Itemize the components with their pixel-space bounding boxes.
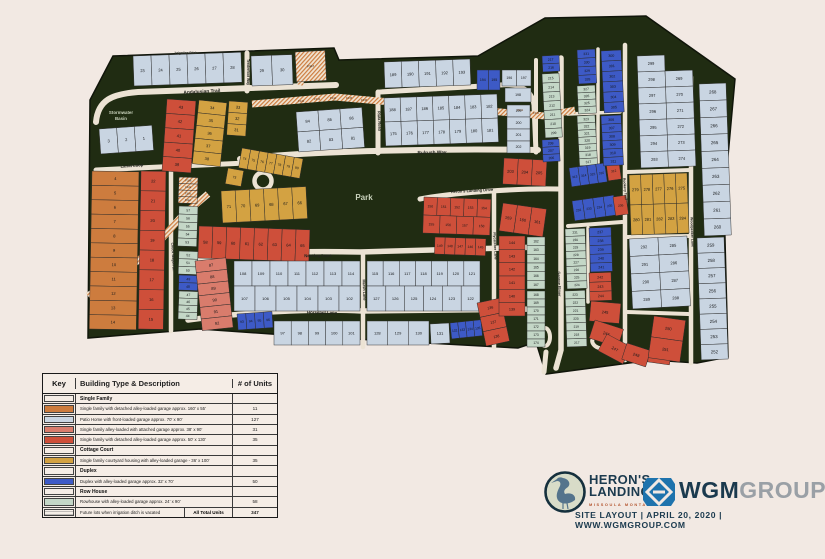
lot-number: 327 xyxy=(583,87,589,91)
lot-number: 170 xyxy=(533,309,539,313)
lot-number: 94 xyxy=(249,319,253,323)
legend-key-swatch xyxy=(43,435,76,444)
lot-block: 149148147146145 xyxy=(434,237,486,256)
lot-block: 115116117118119120121127126125124123122 xyxy=(367,261,480,311)
legend-row: Row House xyxy=(43,486,277,496)
legend-key-swatch xyxy=(43,456,76,465)
lot-number: 239 xyxy=(598,248,604,252)
lot-number: 209 xyxy=(551,131,557,135)
lot-number: 217 xyxy=(548,58,554,62)
lot-number: 182 xyxy=(486,104,494,109)
lot-number: 187 xyxy=(405,106,413,111)
lot-number: 134 xyxy=(467,327,473,332)
lot-number: 129 xyxy=(395,330,402,335)
lot-block: 321 xyxy=(99,125,154,154)
lot-block: 237238239240241 xyxy=(589,227,613,272)
lot-block: 300301302303304305 xyxy=(601,50,624,113)
lot-block: 4342414039 xyxy=(162,99,196,173)
street-label: Riata Road xyxy=(377,111,382,132)
lot-block: F336F335F334F333 xyxy=(178,177,198,204)
legend-row: Patio Home with front-loaded garage appr… xyxy=(43,414,277,424)
legend-row-units xyxy=(232,466,277,475)
lot-number: 101 xyxy=(348,330,355,335)
lot-number: 243 xyxy=(597,285,603,289)
lot-number: 49 xyxy=(186,277,190,281)
lot-number: 302 xyxy=(609,74,615,78)
legend-row: Single Family xyxy=(43,394,277,403)
lot-number: 153 xyxy=(468,206,474,210)
lot-number: 329 xyxy=(584,69,590,73)
lot-block: 128129130 xyxy=(367,321,429,345)
lot-number: 165 xyxy=(533,265,539,269)
lot-block: 93949596 xyxy=(237,312,273,330)
lot-number: 287 xyxy=(671,278,679,283)
legend-key-swatch xyxy=(43,425,76,434)
lot-number: 328 xyxy=(585,77,591,81)
lot-number: 132 xyxy=(452,328,458,333)
future-lot-label: F342 xyxy=(298,99,305,103)
lot-number: 107 xyxy=(241,296,248,301)
lot-block: 108109110111112113114107106105104103102 xyxy=(234,261,360,311)
lot-number: 44 xyxy=(186,314,190,318)
lot-number: 316 xyxy=(599,171,605,176)
lot-number: 306 xyxy=(608,118,614,122)
lot-number: 231 xyxy=(572,230,578,234)
lot-number: 184 xyxy=(454,105,462,110)
lot-number: 308 xyxy=(609,134,615,138)
lot-number: F334 xyxy=(185,191,192,195)
lot-number: 240 xyxy=(598,257,604,261)
lot-block: 5859606162636465 xyxy=(198,226,310,262)
lot-block: 208207206 xyxy=(542,139,560,162)
lot-number: 125 xyxy=(411,296,418,301)
lot-block: 323322321320319318317 xyxy=(577,115,598,166)
lot-number: 122 xyxy=(467,296,474,301)
lot-number: 181 xyxy=(487,128,495,133)
lot-number: 108 xyxy=(240,271,247,276)
lot-number: 218 xyxy=(574,333,580,337)
area-label: Basin xyxy=(115,116,127,121)
lot-number: 176 xyxy=(406,130,414,135)
lot-number: 280 xyxy=(633,217,641,222)
lot-number: 304 xyxy=(610,95,616,99)
lot-number: 270 xyxy=(676,92,684,97)
lot-number: 288 xyxy=(672,295,680,300)
legend-row-label: Rowhouse with alley-loaded garage approx… xyxy=(76,497,232,506)
lot-block: 259258257256255254253252 xyxy=(697,237,728,360)
legend-header: Key Building Type & Description # of Uni… xyxy=(43,374,277,394)
lot-number: 113 xyxy=(330,271,337,276)
lot-number: 200 xyxy=(516,121,522,125)
lot-block: 268267266265264263262261260 xyxy=(699,83,731,236)
lot-number: 130 xyxy=(415,330,422,335)
lot-number: 267 xyxy=(710,106,718,111)
lot-number: 140 xyxy=(509,294,515,298)
lot-number: 303 xyxy=(610,85,616,89)
lot-number: 314 xyxy=(581,173,587,178)
lot-block: 150151152153154155156157158 xyxy=(423,197,491,235)
lot-number: 214 xyxy=(548,85,554,89)
lot-number: 145 xyxy=(478,245,484,249)
lot-number: 331 xyxy=(583,52,589,56)
lot-number: 301 xyxy=(609,64,615,68)
lot-number: 56 xyxy=(186,216,190,220)
lot-number: 109 xyxy=(258,271,265,276)
lot-number: 114 xyxy=(348,271,355,276)
lot-block: 242243244 xyxy=(589,272,612,301)
lot-number: 197 xyxy=(521,76,527,80)
lot-number: 281 xyxy=(645,217,653,222)
lot-number: 229 xyxy=(573,245,579,249)
legend-key-swatch xyxy=(43,487,76,496)
legend-row: Duplex xyxy=(43,465,277,475)
legend-key-swatch xyxy=(43,466,76,475)
site-layout-poster: 2324252627282930F34718919019119219318818… xyxy=(0,0,825,559)
legend-row-units: 11 xyxy=(232,404,277,413)
lot-number: 144 xyxy=(509,241,515,245)
legend-key-swatch xyxy=(43,497,76,506)
lot-number: 257 xyxy=(708,273,716,278)
lot-number: 253 xyxy=(710,334,718,339)
lot-number: 210 xyxy=(550,122,556,126)
lot-number: 154 xyxy=(481,206,487,210)
lot-number: 311 xyxy=(610,159,616,163)
lot-number: 143 xyxy=(509,254,515,258)
lot-block: F347 xyxy=(295,50,327,82)
lot-number: 127 xyxy=(373,296,380,301)
lot-block: 245 xyxy=(589,301,621,324)
legend-row: Single family with detached alley-loaded… xyxy=(43,434,277,444)
lot-block: 4567891011121314 xyxy=(89,171,139,330)
lot-block: 232425262728 xyxy=(133,52,242,86)
lot-block: 144143142141140139 xyxy=(499,236,525,316)
lot-number: 133 xyxy=(460,328,466,333)
lot-number: 118 xyxy=(420,271,427,276)
lot-number: 174 xyxy=(533,341,539,345)
lot-number: 80 xyxy=(295,166,300,171)
legend-key-swatch xyxy=(43,508,76,517)
lot-block: 199200201202 xyxy=(507,105,530,153)
lot-number: 95 xyxy=(257,319,261,323)
lot-number: 307 xyxy=(609,126,615,130)
lot-number: 106 xyxy=(262,296,269,301)
lot-number: 46 xyxy=(186,300,190,304)
lot-number: 124 xyxy=(430,296,437,301)
lot-number: 300 xyxy=(608,54,614,58)
lot-number: 163 xyxy=(533,248,539,252)
lot-number: 259 xyxy=(707,243,715,248)
lot-number: 289 xyxy=(643,297,651,302)
lot-block: 215214213212211210209 xyxy=(542,73,562,138)
lot-number: 205 xyxy=(536,170,544,175)
legend-row: Single family alley-loaded with attached… xyxy=(43,424,277,434)
lot-number: 76 xyxy=(260,160,265,165)
lot-number: 277 xyxy=(655,186,663,191)
lot-number: 269 xyxy=(676,76,684,81)
lot-number: 242 xyxy=(597,275,603,279)
legend-row-label: Single family courtyard housing with all… xyxy=(76,456,232,465)
lot-number: 226 xyxy=(574,268,580,272)
lot-block: 333231 xyxy=(227,101,248,136)
lot-block: 979899100101 xyxy=(274,321,360,345)
legend-table: Key Building Type & Description # of Uni… xyxy=(42,373,278,518)
legend-row-units xyxy=(232,446,277,455)
lot-number: 152 xyxy=(454,205,460,209)
lot-number: 232 xyxy=(576,208,582,213)
lot-number: 271 xyxy=(677,108,685,113)
future-lot-label: F343 xyxy=(314,97,321,101)
lot-number: 265 xyxy=(711,140,719,145)
lot-number: 179 xyxy=(454,129,462,134)
lot-number: 57 xyxy=(186,208,190,212)
lot-block: 131 xyxy=(430,323,450,344)
lot-number: 103 xyxy=(325,296,332,301)
legend-row: Rowhouse with alley-loaded garage approx… xyxy=(43,496,277,506)
lot-number: 297 xyxy=(649,93,657,98)
future-lot-label: F345 xyxy=(346,96,353,100)
lot-number: 286 xyxy=(670,260,678,265)
lot-number: 97 xyxy=(280,330,285,335)
lot-number: 139 xyxy=(509,308,515,312)
lot-number: 272 xyxy=(677,124,685,129)
lot-number: 150 xyxy=(427,204,433,208)
legend-row-units: 50 xyxy=(232,477,277,486)
legend-row: Single family with detached alley-loaded… xyxy=(43,403,277,413)
lot-number: 305 xyxy=(611,105,617,109)
lot-block: 189190191192193 xyxy=(384,59,471,88)
lot-number: 146 xyxy=(467,245,473,249)
lot-number: 193 xyxy=(458,70,466,75)
lot-number: 206 xyxy=(549,156,555,160)
lot-number: 266 xyxy=(710,123,718,128)
lot-number: 190 xyxy=(407,71,415,76)
lot-block: 250251 xyxy=(648,316,686,362)
lot-number: 53 xyxy=(185,240,189,244)
lot-number: 126 xyxy=(392,296,399,301)
lot-block: 4948 xyxy=(178,275,198,291)
lot-block: 223222221220219218217 xyxy=(565,290,587,347)
lot-number: 217 xyxy=(574,341,580,345)
lot-number: 294 xyxy=(650,141,658,146)
lot-number: 96 xyxy=(266,318,270,322)
legend-key-swatch xyxy=(43,404,76,413)
lot-number: 230 xyxy=(573,238,579,242)
legend-row-label: Duplex with alley-loaded garage approx. … xyxy=(76,477,232,486)
legend-row-units: 31 xyxy=(232,425,277,434)
lot-number: 45 xyxy=(186,307,190,311)
lot-number: 273 xyxy=(678,140,686,145)
legend-row-label: Single Family xyxy=(76,394,232,403)
legend-header-units: # of Units xyxy=(232,379,277,388)
lot-number: 55 xyxy=(186,224,190,228)
legend-row-label: Cottage Court xyxy=(76,446,232,455)
lot-number: 79 xyxy=(286,164,291,169)
lot-number: 299 xyxy=(648,61,656,66)
lot-number: 317 xyxy=(585,160,591,164)
lot-number: 116 xyxy=(388,271,395,276)
lot-number: 52 xyxy=(186,253,190,257)
lot-number: 234 xyxy=(596,205,602,210)
lot-number: 325 xyxy=(584,101,590,105)
lot-number: 235 xyxy=(607,204,613,209)
lot-number: 222 xyxy=(573,301,579,305)
lot-number: 50 xyxy=(186,269,190,273)
lot-number: 290 xyxy=(642,279,650,284)
legend-total-label: All Total Units xyxy=(184,508,232,517)
lot-number: 188 xyxy=(389,107,397,112)
lot-number: 164 xyxy=(533,257,539,261)
lot-number: 245 xyxy=(602,309,610,315)
street-label: Horsetail Lane xyxy=(307,310,338,316)
lot-block: 217216 xyxy=(542,55,560,72)
legend-row-label: Row House xyxy=(76,487,232,496)
lot-block: 162163164165166167 xyxy=(527,237,545,289)
lot-number: 158 xyxy=(479,224,485,228)
lot-block: 717069686766 xyxy=(221,187,308,223)
legend-row-label: Single family alley-loaded with attached… xyxy=(76,425,232,434)
lot-number: 117 xyxy=(404,271,411,276)
lot-number: 323 xyxy=(583,117,589,121)
lot-number: 201 xyxy=(516,133,522,137)
lot-number: 123 xyxy=(448,296,455,301)
lot-number: 178 xyxy=(438,129,446,134)
lot-number: 183 xyxy=(470,104,478,109)
lot-number: 112 xyxy=(312,271,319,276)
lot-number: 172 xyxy=(533,325,539,329)
lot-block: 198 xyxy=(505,88,531,102)
lot-number: 315 xyxy=(590,172,596,177)
lot-number: 224 xyxy=(574,283,580,287)
lot-number: 292 xyxy=(640,244,648,249)
lot-number: 189 xyxy=(390,72,398,77)
legend-row-units: 58 xyxy=(232,497,277,506)
lot-number: 256 xyxy=(709,288,717,293)
lot-number: 319 xyxy=(585,146,591,150)
lot-number: 171 xyxy=(533,317,539,321)
lot-number: 99 xyxy=(315,330,320,335)
lot-block: 2221201918171615 xyxy=(138,171,166,329)
legend-row-units: 35 xyxy=(232,435,277,444)
lot-number: 51 xyxy=(186,261,190,265)
lot-number: 318 xyxy=(585,153,591,157)
lot-number: 228 xyxy=(573,253,579,257)
lot-number: 293 xyxy=(651,157,659,162)
lot-block: 299298269297270296271295272294273293274 xyxy=(637,54,696,168)
lot-block: 47464544 xyxy=(178,291,198,320)
legend-row-units xyxy=(232,394,277,403)
lot-number: 296 xyxy=(649,109,657,114)
lot-number: 330 xyxy=(584,60,590,64)
lot-number: 54 xyxy=(186,232,190,236)
lot-block: 5756555453 xyxy=(178,206,198,247)
legend-row-units: 127 xyxy=(232,415,277,424)
lot-number: 198 xyxy=(515,93,521,97)
lot-number: 225 xyxy=(574,275,580,279)
lot-number: 121 xyxy=(469,271,476,276)
lot-number: 105 xyxy=(283,296,290,301)
lot-number: 208 xyxy=(548,141,554,145)
lot-number: 227 xyxy=(573,260,579,264)
legend-row: Duplex with alley-loaded garage approx. … xyxy=(43,476,277,486)
lot-number: 156 xyxy=(445,223,451,227)
lot-number: 128 xyxy=(374,330,381,335)
legend-rows: Single FamilySingle family with detached… xyxy=(43,394,277,517)
lot-number: 241 xyxy=(598,265,604,269)
legend-header-key: Key xyxy=(43,378,76,389)
lot-number: F333 xyxy=(185,198,192,202)
lot-number: 261 xyxy=(713,208,721,213)
lot-number: 131 xyxy=(437,331,445,336)
lot-number: 166 xyxy=(533,274,539,278)
lot-number: 195 xyxy=(491,78,497,82)
lot-number: 74 xyxy=(242,157,247,162)
lot-number: 102 xyxy=(346,296,353,301)
lot-block: 196197 xyxy=(502,70,531,86)
legend-row-label: Single family with detached alley-loaded… xyxy=(76,404,232,413)
lot-number: F335 xyxy=(185,185,192,189)
legend-row-label: Patio Home with front-loaded garage appr… xyxy=(76,415,232,424)
lot-number: 173 xyxy=(533,333,539,337)
street-label: Tenderfoot Way xyxy=(246,59,250,85)
future-lot-label: F340 xyxy=(533,111,540,115)
lot-number: 276 xyxy=(667,186,675,191)
lot-number: 291 xyxy=(641,262,649,267)
legend-row-units xyxy=(232,487,277,496)
lot-number: 75 xyxy=(251,158,256,163)
legend-key-swatch xyxy=(43,415,76,424)
lot-number: 148 xyxy=(447,244,453,248)
lot-number: 238 xyxy=(597,239,603,243)
lot-number: 194 xyxy=(480,78,486,82)
lot-number: 215 xyxy=(548,76,554,80)
lot-number: 283 xyxy=(668,216,676,221)
lot-number: 167 xyxy=(533,283,539,287)
lot-block: 292285291286290287289288 xyxy=(629,236,691,309)
lot-number: 203 xyxy=(507,169,515,174)
lot-number: 310 xyxy=(610,151,616,155)
legend-row-label: Future lots when irrigation ditch is vac… xyxy=(76,508,184,517)
lot-number: 326 xyxy=(584,94,590,98)
lot-number: 142 xyxy=(509,268,515,272)
lot-number: 157 xyxy=(462,224,468,228)
lot-number: 233 xyxy=(586,206,592,211)
lot-number: 221 xyxy=(573,309,579,313)
lot-number: 320 xyxy=(584,139,590,143)
lot-number: F336 xyxy=(185,178,192,182)
lot-block: 848586828381 xyxy=(296,107,365,152)
lot-number: 274 xyxy=(678,156,686,161)
lot-number: 252 xyxy=(711,349,719,354)
lot-number: 155 xyxy=(429,222,435,226)
lot-block: 327326325324 xyxy=(577,85,596,114)
lot-number: 186 xyxy=(421,106,429,111)
legend-row: Cottage Court xyxy=(43,445,277,455)
lot-number: 219 xyxy=(574,325,580,329)
legend-row-label: Duplex xyxy=(76,466,232,475)
lot-number: 47 xyxy=(186,293,190,297)
lot-number: 175 xyxy=(390,131,398,136)
lot-number: 48 xyxy=(186,285,190,289)
lot-number: 93 xyxy=(240,320,244,324)
lot-number: 192 xyxy=(441,70,449,75)
lot-number: 321 xyxy=(584,131,590,135)
lot-number: 262 xyxy=(713,191,721,196)
lot-number: 207 xyxy=(548,149,554,153)
legend-key-swatch xyxy=(43,394,76,403)
lot-number: 298 xyxy=(648,77,656,82)
lot-number: 322 xyxy=(584,124,590,128)
lot-number: 268 xyxy=(709,89,717,94)
